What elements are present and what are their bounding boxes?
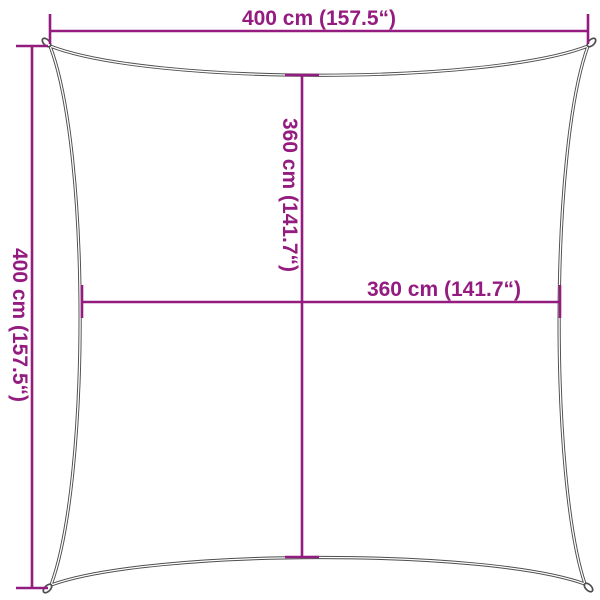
dimension-inner-width: 360 cm (141.7“) (82, 278, 560, 318)
dimension-top-label: 400 cm (157.5“) (242, 7, 396, 30)
sail-edge-inner (50, 46, 588, 585)
dimension-left-height: 400 cm (157.5“) (8, 46, 48, 588)
dimension-top-width: 400 cm (157.5“) (50, 7, 588, 44)
sail-outline (41, 37, 597, 594)
sail-edge-outer (50, 46, 588, 585)
diagram-canvas: 400 cm (157.5“) 400 cm (157.5“) 360 cm (… (0, 0, 600, 600)
product-dimension-diagram: 400 cm (157.5“) 400 cm (157.5“) 360 cm (… (0, 0, 600, 600)
dimension-inner-horizontal-label: 360 cm (141.7“) (367, 278, 521, 301)
corner-loop-bottom-right (583, 582, 594, 593)
dimension-inner-vertical-label: 360 cm (141.7“) (278, 118, 301, 272)
dimension-inner-height: 360 cm (141.7“) (278, 75, 319, 557)
dimension-left-label: 400 cm (157.5“) (8, 248, 31, 402)
